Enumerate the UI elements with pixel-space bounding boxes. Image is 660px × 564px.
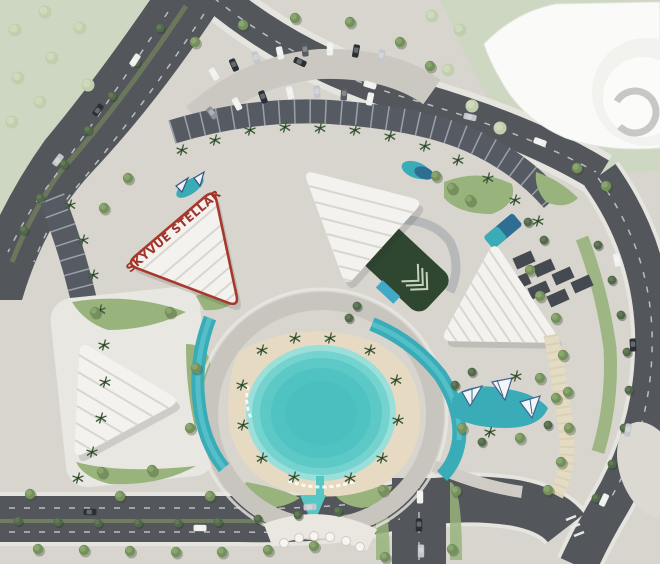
site-plan-svg: SKYVUE STELLAR xyxy=(0,0,660,564)
lagoon-pool xyxy=(285,381,357,445)
master-plan-render: SKYVUE STELLAR xyxy=(0,0,660,564)
